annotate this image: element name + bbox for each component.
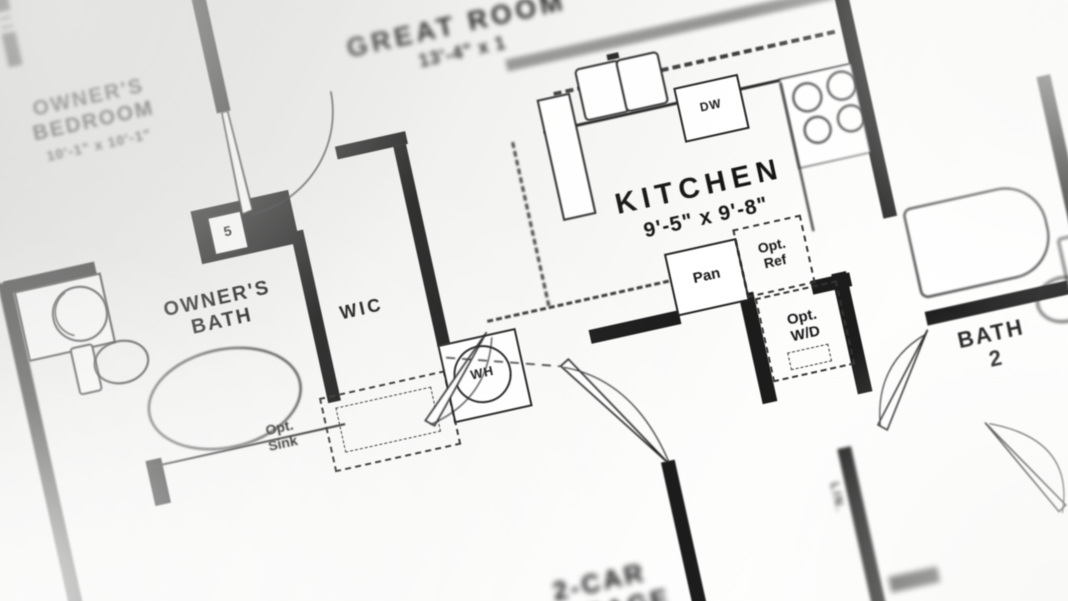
wall-smudge-bottom-right bbox=[888, 566, 940, 592]
opt-sink-box bbox=[319, 370, 461, 472]
bath2-door-arc bbox=[863, 334, 943, 426]
owners-bedroom-label: OWNER'S BEDROOM 10'-1" x 10'-1" bbox=[0, 65, 198, 175]
bedroom-door-arc bbox=[228, 91, 353, 214]
hall-door-arc bbox=[564, 350, 669, 481]
opt-wd-inner-dash bbox=[787, 344, 832, 371]
wall-linen-stub bbox=[837, 446, 890, 601]
owners-bath-label: OWNER'S BATH bbox=[127, 269, 313, 353]
wall-window-segment-bottom bbox=[2, 31, 23, 67]
pantry-label: Pan bbox=[671, 260, 743, 292]
floorplan-photo: 5 DW Pan Opt. bbox=[0, 0, 1068, 601]
bottomright-door-arc bbox=[989, 411, 1068, 524]
wall-bedroom-entry bbox=[190, 0, 231, 113]
window-line bbox=[0, 16, 11, 21]
ceiling-dashed-vertical bbox=[511, 142, 550, 307]
opt-washer-dryer-box: Opt. W/D bbox=[755, 280, 856, 382]
shelf-count-label: 5 bbox=[210, 220, 245, 243]
bathtub-bath2 bbox=[902, 179, 1058, 299]
opt-sink-inner-dash bbox=[335, 387, 441, 453]
ceiling-dashed-horizontal bbox=[487, 280, 669, 323]
wic-label: WIC bbox=[320, 290, 403, 328]
opt-refrigerator-box: Opt. Ref bbox=[732, 215, 815, 298]
wall-hall-great bbox=[589, 310, 682, 344]
bottomright-door-leaf bbox=[985, 409, 1067, 523]
dishwasher-label: DW bbox=[679, 93, 743, 120]
floorplan-drawing: 5 DW Pan Opt. bbox=[0, 0, 1068, 601]
garage-partial-label: 2-CAR GARAGE bbox=[499, 546, 707, 601]
linen-label: LIN. bbox=[821, 481, 847, 515]
water-heater-label: WH bbox=[454, 360, 510, 386]
window-line bbox=[1, 25, 13, 30]
dishwasher-box: DW bbox=[673, 74, 750, 143]
hall-door-leaf bbox=[560, 343, 669, 481]
wall-wic-right bbox=[393, 143, 450, 346]
wall-window-segment-top bbox=[0, 0, 11, 13]
